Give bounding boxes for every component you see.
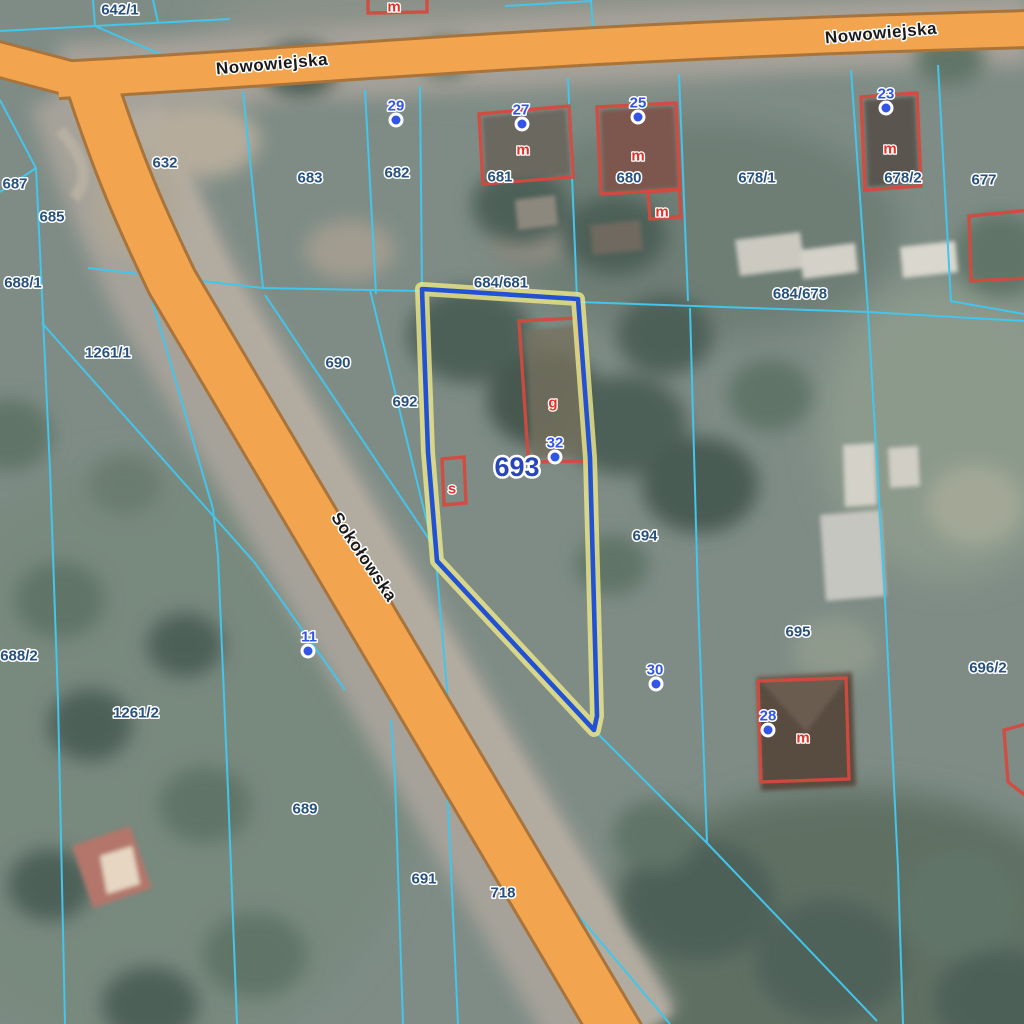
address-point-28[interactable]: 28 <box>760 708 777 738</box>
building-label: m <box>796 730 809 747</box>
address-point-27[interactable]: 27 <box>513 102 530 132</box>
building-label-garage: g <box>548 395 557 412</box>
parcel-label: 1261/2 <box>113 705 159 722</box>
parcel-label: 694 <box>632 528 658 545</box>
roof <box>888 446 920 488</box>
building-label: m <box>655 204 668 221</box>
parcel-label-693-highlight: 693 <box>494 452 539 482</box>
parcel-label: 687 <box>2 176 27 193</box>
field-patch <box>927 465 1023 545</box>
parcel-label: 696/2 <box>969 660 1007 677</box>
address-point-23[interactable]: 23 <box>878 86 895 116</box>
parcel-label: 718 <box>490 885 515 902</box>
parcel-label: 632 <box>152 155 177 172</box>
parcel-label: 689 <box>292 801 317 818</box>
parcel-label: 692 <box>392 394 417 411</box>
parcel-label: 684/681 <box>474 275 528 292</box>
address-number: 11 <box>301 629 317 646</box>
parcel-label: 677 <box>971 172 996 189</box>
address-point-30[interactable]: 30 <box>647 662 664 692</box>
address-point-11[interactable]: 11 <box>301 629 317 659</box>
tree-canopy <box>15 562 105 638</box>
parcel-label: 684/678 <box>773 286 827 303</box>
parcel-label: 682 <box>384 165 409 182</box>
building-label: m <box>516 142 529 159</box>
parcel-label: 688/1 <box>4 275 42 292</box>
address-point-32[interactable]: 32 <box>547 435 564 465</box>
tree-canopy <box>89 455 161 515</box>
parcel-label: 690 <box>325 355 350 372</box>
address-point-29[interactable]: 29 <box>388 98 405 128</box>
address-dot[interactable] <box>392 116 401 125</box>
address-dot[interactable] <box>634 113 643 122</box>
roof <box>515 195 558 230</box>
roof <box>843 443 877 507</box>
tree-canopy <box>900 850 1020 960</box>
building-label: m <box>883 141 896 158</box>
map-viewport[interactable]: 605 Nowowiejska Nowowiejska Sokołowska m… <box>0 0 1024 1024</box>
parcel-label: 691 <box>411 871 436 888</box>
address-number: 29 <box>388 98 405 115</box>
tree-canopy <box>613 800 697 870</box>
address-number: 30 <box>647 662 664 679</box>
tree-canopy <box>147 613 223 677</box>
parcel-label: 642/1 <box>101 2 139 19</box>
address-dot[interactable] <box>304 647 313 656</box>
parcel-label: 681 <box>487 169 512 186</box>
address-number: 27 <box>513 102 530 119</box>
building-label: m <box>387 0 400 16</box>
address-dot[interactable] <box>764 726 773 735</box>
address-dot[interactable] <box>518 120 527 129</box>
address-point-25[interactable]: 25 <box>630 95 647 125</box>
address-number: 25 <box>630 95 647 112</box>
address-dot[interactable] <box>882 104 891 113</box>
parcel-label: 683 <box>297 170 322 187</box>
tree-canopy <box>159 767 251 843</box>
address-dot[interactable] <box>551 453 560 462</box>
parcel-label: 695 <box>785 624 810 641</box>
building-label-shed: s <box>448 481 456 498</box>
tree-canopy <box>48 689 132 761</box>
roof <box>590 220 643 255</box>
address-dot[interactable] <box>652 680 661 689</box>
tree-canopy <box>203 913 307 997</box>
parcel-label: 678/1 <box>738 170 776 187</box>
roof <box>820 510 886 601</box>
building-label: m <box>631 148 644 165</box>
parcel-label: 1261/1 <box>85 345 131 362</box>
tree-canopy <box>728 359 812 431</box>
parcel-label: 678/2 <box>884 170 922 187</box>
address-number: 32 <box>547 435 564 452</box>
dirt-patch <box>305 220 395 280</box>
parcel-label: 688/2 <box>0 648 38 665</box>
tree-canopy <box>642 437 758 533</box>
parcel-label: 680 <box>616 170 641 187</box>
parcel-label: 685 <box>39 209 64 226</box>
address-number: 28 <box>760 708 777 725</box>
map-canvas[interactable]: 605 Nowowiejska Nowowiejska Sokołowska m… <box>0 0 1024 1024</box>
address-number: 23 <box>878 86 895 103</box>
